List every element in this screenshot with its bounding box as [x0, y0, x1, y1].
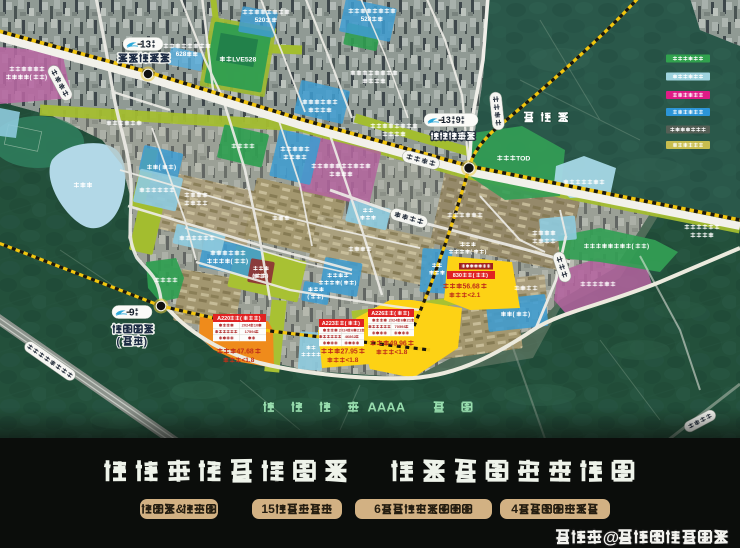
svg-text:A223: A223: [322, 321, 335, 327]
svg-text:(: (: [345, 321, 347, 327]
svg-text:): ): [259, 316, 261, 322]
svg-text:): ): [45, 74, 47, 81]
svg-text:(: (: [473, 273, 475, 279]
svg-text:9: 9: [456, 115, 461, 125]
svg-text:528: 528: [361, 16, 372, 23]
svg-text:49.96: 49.96: [390, 340, 407, 347]
svg-text:(: (: [307, 295, 309, 301]
svg-text:A220: A220: [217, 316, 230, 322]
svg-text:(: (: [116, 336, 120, 348]
svg-text:27.95: 27.95: [341, 348, 358, 355]
svg-text:<1.8: <1.8: [395, 349, 408, 356]
svg-text:10: 10: [254, 323, 259, 328]
svg-text:): ): [408, 311, 410, 317]
svg-text:): ): [355, 281, 357, 287]
svg-text:21: 21: [407, 318, 412, 323]
svg-text:9: 9: [129, 307, 135, 318]
svg-text:&: &: [176, 502, 185, 516]
svg-text:): ): [174, 164, 176, 171]
svg-text:830: 830: [453, 273, 462, 279]
svg-text:): ): [647, 243, 649, 250]
svg-text:TOD: TOD: [516, 155, 530, 162]
svg-text:): ): [246, 258, 248, 265]
svg-text:<1.8: <1.8: [346, 357, 359, 364]
svg-text:): ): [322, 295, 324, 301]
svg-text:): ): [144, 336, 148, 348]
svg-text:6: 6: [374, 502, 381, 516]
svg-text:<1.8: <1.8: [242, 357, 255, 364]
svg-text:): ): [528, 311, 530, 318]
svg-text:LVE528: LVE528: [232, 56, 256, 63]
svg-text:@: @: [603, 528, 619, 547]
svg-text:21: 21: [357, 328, 362, 333]
svg-text:(: (: [340, 281, 342, 287]
svg-text:56.68: 56.68: [463, 283, 480, 290]
svg-text:(: (: [470, 250, 472, 256]
svg-text:46862: 46862: [345, 334, 357, 339]
svg-text:(: (: [240, 316, 242, 322]
svg-text:2024: 2024: [242, 323, 252, 328]
svg-text:628: 628: [176, 51, 187, 58]
svg-text:17594: 17594: [245, 329, 257, 334]
svg-text:<2.1: <2.1: [468, 292, 481, 299]
svg-text:(: (: [394, 311, 396, 317]
svg-text:520: 520: [255, 17, 266, 24]
svg-text:2024: 2024: [339, 328, 349, 333]
svg-text:47.68: 47.68: [237, 348, 254, 355]
svg-text:15: 15: [261, 502, 275, 516]
svg-text:): ): [267, 274, 269, 280]
svg-text:4: 4: [511, 502, 518, 516]
svg-text:13: 13: [140, 39, 152, 50]
svg-text:): ): [358, 321, 360, 327]
svg-text:A226: A226: [371, 311, 384, 317]
svg-text:): ): [486, 273, 488, 279]
svg-text:70593: 70593: [395, 324, 407, 329]
svg-text:13: 13: [441, 115, 451, 125]
svg-text:2024: 2024: [389, 318, 399, 323]
svg-text:): ): [485, 250, 487, 256]
